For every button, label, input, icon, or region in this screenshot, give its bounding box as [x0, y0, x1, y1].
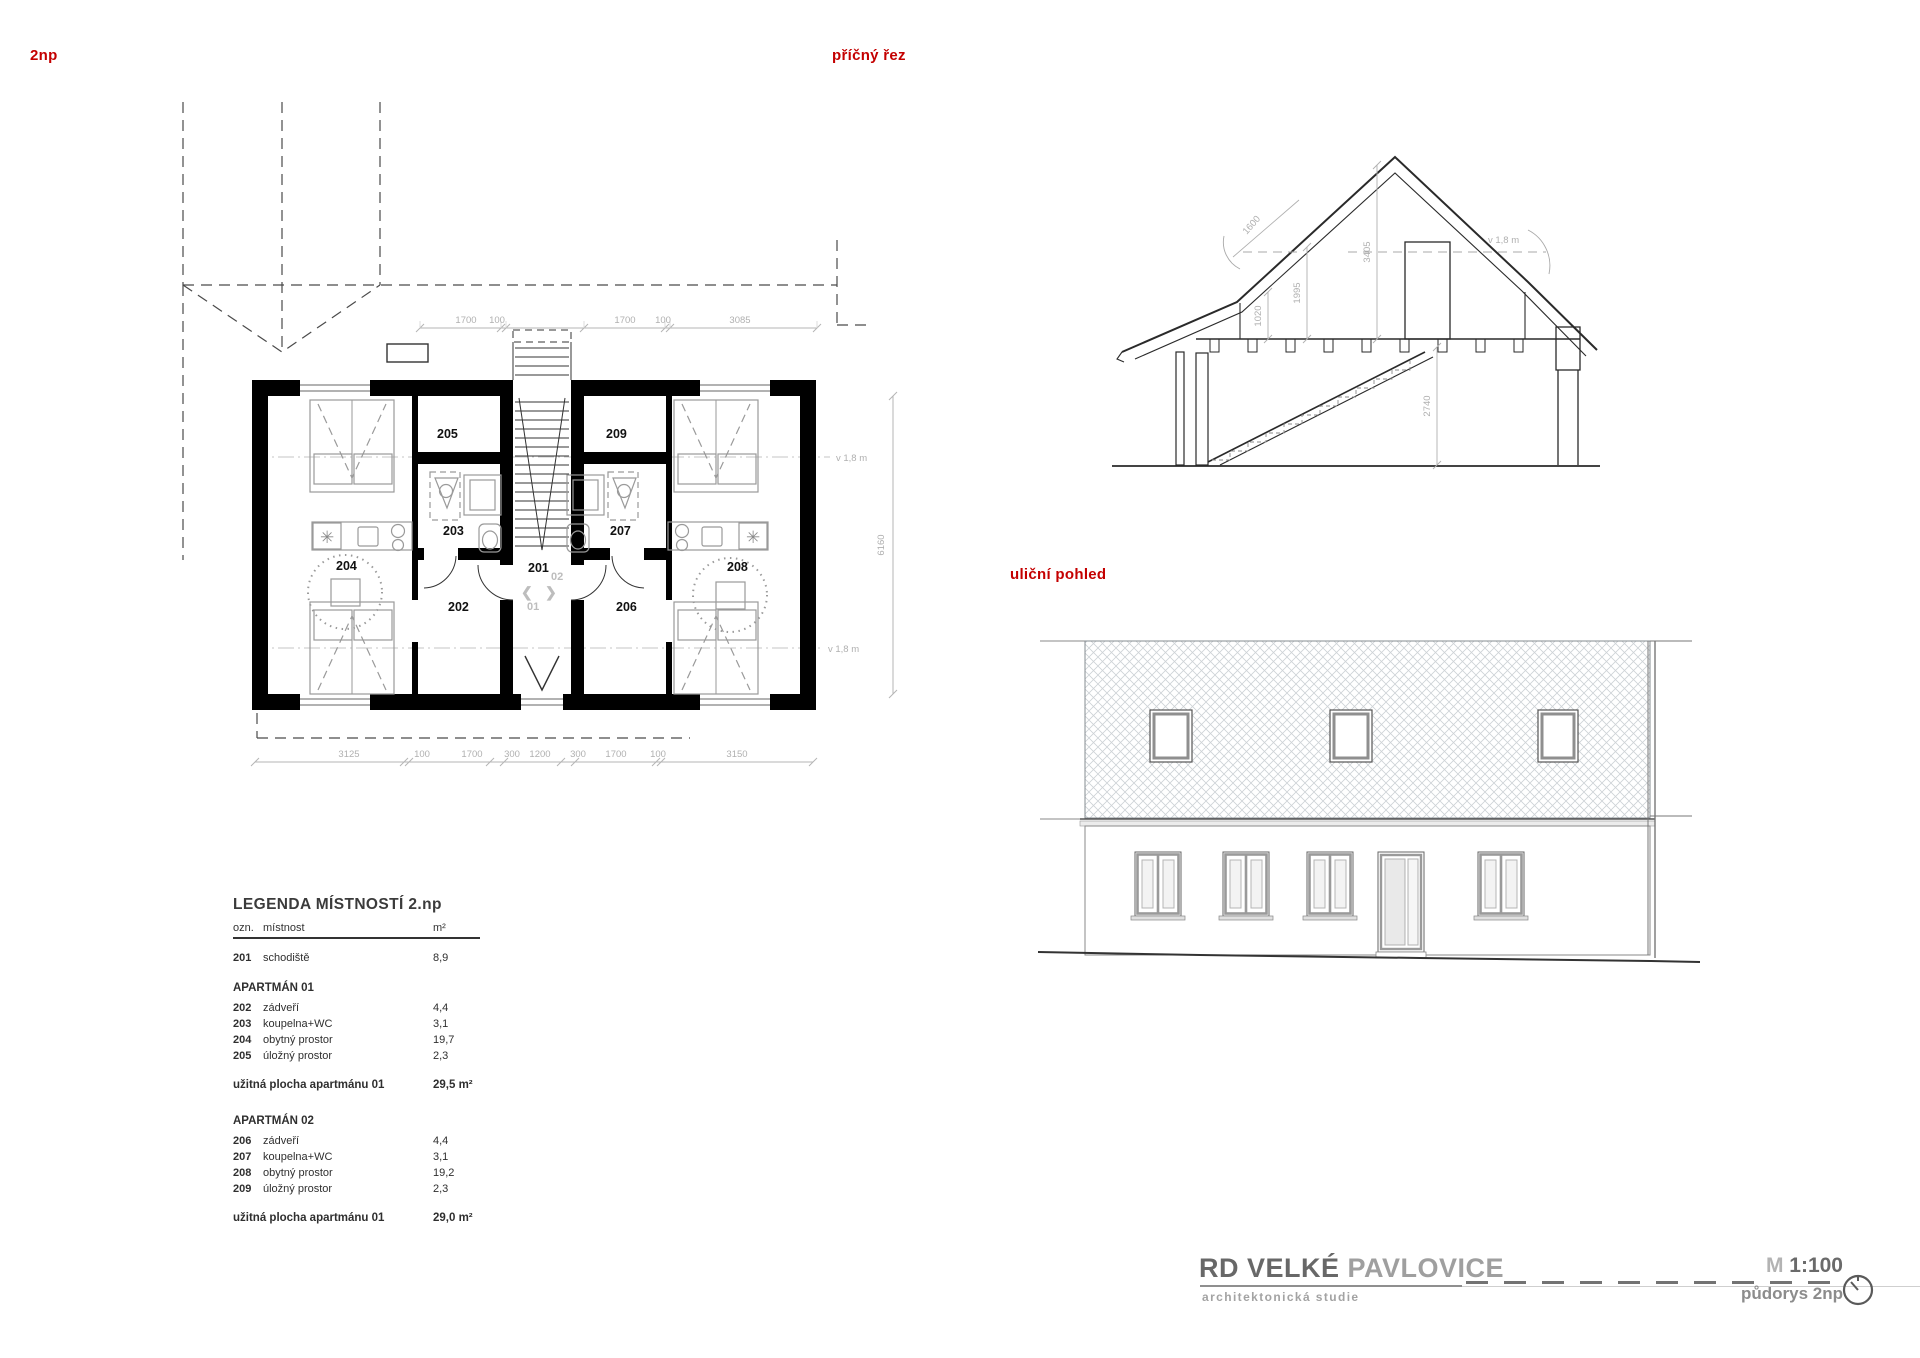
room-label-202: 202 — [448, 600, 469, 614]
dim-label: 300 — [504, 749, 520, 760]
row-num: 208 — [233, 1165, 263, 1181]
dim-label: 1700 — [455, 315, 476, 326]
row-num: 205 — [233, 1048, 263, 1064]
dim-label: 3150 — [726, 749, 747, 760]
room-label-208: 208 — [727, 560, 748, 574]
row-name: zádveří — [263, 1000, 433, 1016]
row-num: 209 — [233, 1181, 263, 1197]
row-num: 204 — [233, 1032, 263, 1048]
room-legend: LEGENDA MÍSTNOSTÍ 2.np ozn. místnost m² … — [233, 895, 483, 1226]
legend-row: 207 koupelna+WC 3,1 — [233, 1149, 483, 1165]
headroom-label-2: v 1,8 m — [828, 644, 859, 655]
row-num: 202 — [233, 1000, 263, 1016]
legend-row: 202 zádveří 4,4 — [233, 1000, 483, 1016]
dim-label: 1700 — [614, 315, 635, 326]
room-label-207: 207 — [610, 524, 631, 538]
room-label-201: 201 — [528, 561, 549, 575]
row-name: koupelna+WC — [263, 1016, 433, 1032]
room-label-203: 203 — [443, 524, 464, 538]
legend-row: 205 úložný prostor 2,3 — [233, 1048, 483, 1064]
chimney — [387, 344, 428, 362]
legend-group-title: APARTMÁN 01 — [233, 981, 483, 996]
dim-label: 300 — [570, 749, 586, 760]
stove-icon: ✳ — [746, 528, 760, 547]
legend-row: 204 obytný prostor 19,7 — [233, 1032, 483, 1048]
dim-label: 1700 — [605, 749, 626, 760]
legend-col-num: ozn. — [233, 921, 263, 935]
legend-col-name: místnost — [263, 921, 433, 935]
row-area: 4,4 — [433, 1133, 483, 1149]
unit-mark-02: 02 — [551, 571, 563, 583]
drawing-sheet: v 1,8 m v 1,8 m — [0, 0, 1920, 1358]
dim-label: 3125 — [338, 749, 359, 760]
bathrooms — [430, 472, 638, 552]
dim-label: 1700 — [461, 749, 482, 760]
project-subtitle: architektonická studie — [1202, 1290, 1360, 1304]
section-structure — [1117, 157, 1597, 465]
legend-total: užitná plocha apartmánu 01 29,5 m² — [233, 1077, 483, 1093]
dim-label: 100 — [650, 749, 666, 760]
fascia-band — [1080, 821, 1655, 826]
headroom-label-1: v 1,8 m — [836, 453, 867, 464]
dim-bottom: 3125 100 1700 300 1200 300 1700 100 3150 — [251, 749, 817, 766]
row-name: obytný prostor — [263, 1165, 433, 1181]
beds — [310, 400, 758, 694]
entry-door — [1376, 852, 1426, 958]
room-label-206: 206 — [616, 600, 637, 614]
elevation-title: uliční pohled — [1010, 566, 1106, 583]
level-extension-lines — [1040, 641, 1085, 819]
street-elevation — [1038, 641, 1700, 962]
entry-arrow-right-icon: ❯ — [545, 584, 557, 601]
dim-label-1600: 1600 — [1241, 214, 1263, 237]
titleblock-underline — [1200, 1285, 1462, 1287]
dim-label-1995: 1995 — [1292, 282, 1303, 303]
room-labels: 201 202 203 204 205 206 207 208 209 02 0… — [336, 427, 748, 614]
legend-col-area: m² — [433, 921, 483, 935]
floor-plan: v 1,8 m v 1,8 m — [183, 102, 897, 766]
legend-title: LEGENDA MÍSTNOSTÍ 2.np — [233, 895, 483, 914]
legend-row: 208 obytný prostor 19,2 — [233, 1165, 483, 1181]
dim-label: 1200 — [529, 749, 550, 760]
legend-group-rows: 202 zádveří 4,4 203 koupelna+WC 3,1 204 … — [233, 1000, 483, 1064]
scale-label: M 1:100 — [1645, 1254, 1843, 1278]
row-name: obytný prostor — [263, 1032, 433, 1048]
legend-group-rows: 206 zádveří 4,4 207 koupelna+WC 3,1 208 … — [233, 1133, 483, 1197]
legend-row: 209 úložný prostor 2,3 — [233, 1181, 483, 1197]
dim-right: 6160 — [876, 392, 897, 698]
row-num: 201 — [233, 950, 263, 966]
clock-icon — [1840, 1272, 1876, 1308]
dim-label-3405: 3405 — [1362, 241, 1373, 262]
row-area: 4,4 — [433, 1000, 483, 1016]
entry-arrow-left-icon: ❮ — [521, 584, 533, 601]
project-title: RD VELKÉ PAVLOVICE — [1199, 1253, 1504, 1284]
scale-prefix: M — [1766, 1254, 1784, 1277]
total-label: užitná plocha apartmánu 01 — [233, 1210, 433, 1226]
sheet-name: půdorys 2np — [1605, 1284, 1843, 1304]
row-name: schodiště — [263, 950, 433, 966]
headroom-lines — [252, 457, 830, 648]
legend-total: užitná plocha apartmánu 01 29,0 m² — [233, 1210, 483, 1226]
row-name: úložný prostor — [263, 1048, 433, 1064]
room-label-205: 205 — [437, 427, 458, 441]
row-area: 3,1 — [433, 1149, 483, 1165]
section-title: příčný řez — [832, 47, 906, 64]
project-title-right: PAVLOVICE — [1348, 1253, 1505, 1283]
corner-lines — [1648, 641, 1692, 958]
dim-label-6160: 6160 — [876, 534, 887, 555]
legend-group-title: APARTMÁN 02 — [233, 1114, 483, 1129]
room-label-209: 209 — [606, 427, 627, 441]
dim-label: 3085 — [729, 315, 750, 326]
row-num: 207 — [233, 1149, 263, 1165]
section-dims: 1600 1020 1995 3405 2740 v 1,8 m — [1223, 161, 1550, 469]
unit-mark-01: 01 — [527, 601, 539, 613]
row-area: 2,3 — [433, 1048, 483, 1064]
total-value: 29,5 m² — [433, 1077, 473, 1093]
row-name: zádveří — [263, 1133, 433, 1149]
row-num: 203 — [233, 1016, 263, 1032]
row-area: 2,3 — [433, 1181, 483, 1197]
row-area: 19,2 — [433, 1165, 483, 1181]
row-name: koupelna+WC — [263, 1149, 433, 1165]
row-name: úložný prostor — [263, 1181, 433, 1197]
dim-top: 1700 100 1700 100 3085 — [416, 315, 821, 332]
row-area: 8,9 — [433, 950, 483, 966]
stove-icon: ✳ — [320, 528, 334, 547]
legend-row: 206 zádveří 4,4 — [233, 1133, 483, 1149]
row-area: 3,1 — [433, 1016, 483, 1032]
cross-section: 1600 1020 1995 3405 2740 v 1,8 m — [1112, 157, 1600, 469]
dim-label: 100 — [655, 315, 671, 326]
scale-value: 1:100 — [1789, 1254, 1843, 1277]
dim-label-2740: 2740 — [1422, 395, 1433, 416]
total-value: 29,0 m² — [433, 1210, 473, 1226]
legend-rule — [233, 937, 480, 939]
total-label: užitná plocha apartmánu 01 — [233, 1077, 433, 1093]
headroom-label-section: v 1,8 m — [1488, 235, 1519, 246]
plan-title: 2np — [30, 47, 58, 64]
dim-label: 100 — [489, 315, 505, 326]
room-label-204: 204 — [336, 559, 357, 573]
row-num: 206 — [233, 1133, 263, 1149]
project-title-left: RD VELKÉ — [1199, 1253, 1340, 1283]
dim-label: 100 — [414, 749, 430, 760]
row-area: 19,7 — [433, 1032, 483, 1048]
dim-label-1020: 1020 — [1253, 305, 1264, 326]
legend-header: ozn. místnost m² — [233, 921, 483, 935]
legend-row: 201 schodiště 8,9 — [233, 950, 483, 966]
legend-row: 203 koupelna+WC 3,1 — [233, 1016, 483, 1032]
